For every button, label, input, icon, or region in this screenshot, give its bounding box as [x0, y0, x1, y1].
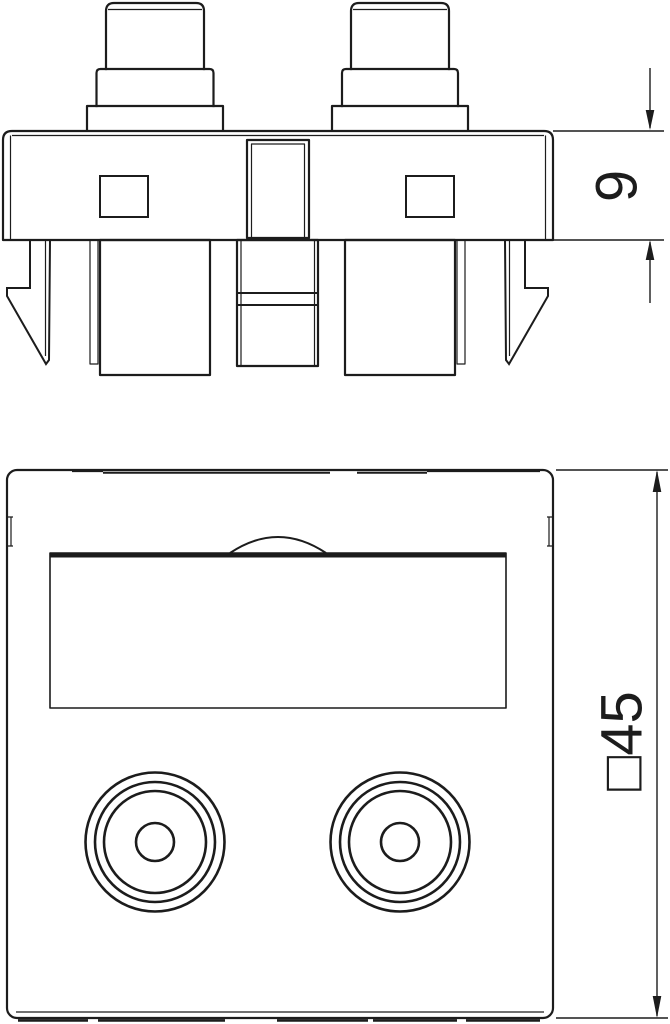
- front-view: □45: [7, 470, 668, 1020]
- center-slot: [247, 140, 309, 238]
- connector-bushing-right: [332, 3, 468, 130]
- center-leg: [237, 240, 318, 366]
- socket-pin-hole-left: [136, 823, 174, 861]
- leg-left: [100, 240, 210, 375]
- dim-label-depth: 9: [585, 170, 650, 202]
- dimension-depth: 9: [553, 68, 664, 303]
- dimension-face: □45: [556, 470, 668, 1018]
- label-field: [50, 537, 506, 708]
- dim-arrow-up-icon: [646, 240, 655, 260]
- body-window-left: [100, 176, 148, 217]
- dim-label-face: □45: [590, 691, 655, 791]
- mounting-hook-right: [505, 240, 548, 364]
- mounting-hook-left: [7, 240, 50, 364]
- cinch-socket-left: [86, 773, 225, 912]
- connector-bushing-left: [87, 3, 223, 130]
- drawing-page: 9: [0, 0, 670, 1024]
- body-window-right: [406, 176, 454, 217]
- side-view: 9: [3, 3, 664, 375]
- side-tab-left: [90, 240, 98, 364]
- module-body: [3, 131, 553, 240]
- socket-pin-hole-right: [381, 823, 419, 861]
- dim-arrow-down-icon: [646, 110, 655, 130]
- technical-drawing: 9: [0, 0, 670, 1024]
- dim-arrow-down-icon: [653, 996, 662, 1018]
- dim-arrow-up-icon: [653, 470, 662, 492]
- side-tab-right: [457, 240, 465, 364]
- grip-arc: [230, 537, 326, 553]
- cinch-socket-right: [331, 773, 470, 912]
- leg-right: [345, 240, 455, 375]
